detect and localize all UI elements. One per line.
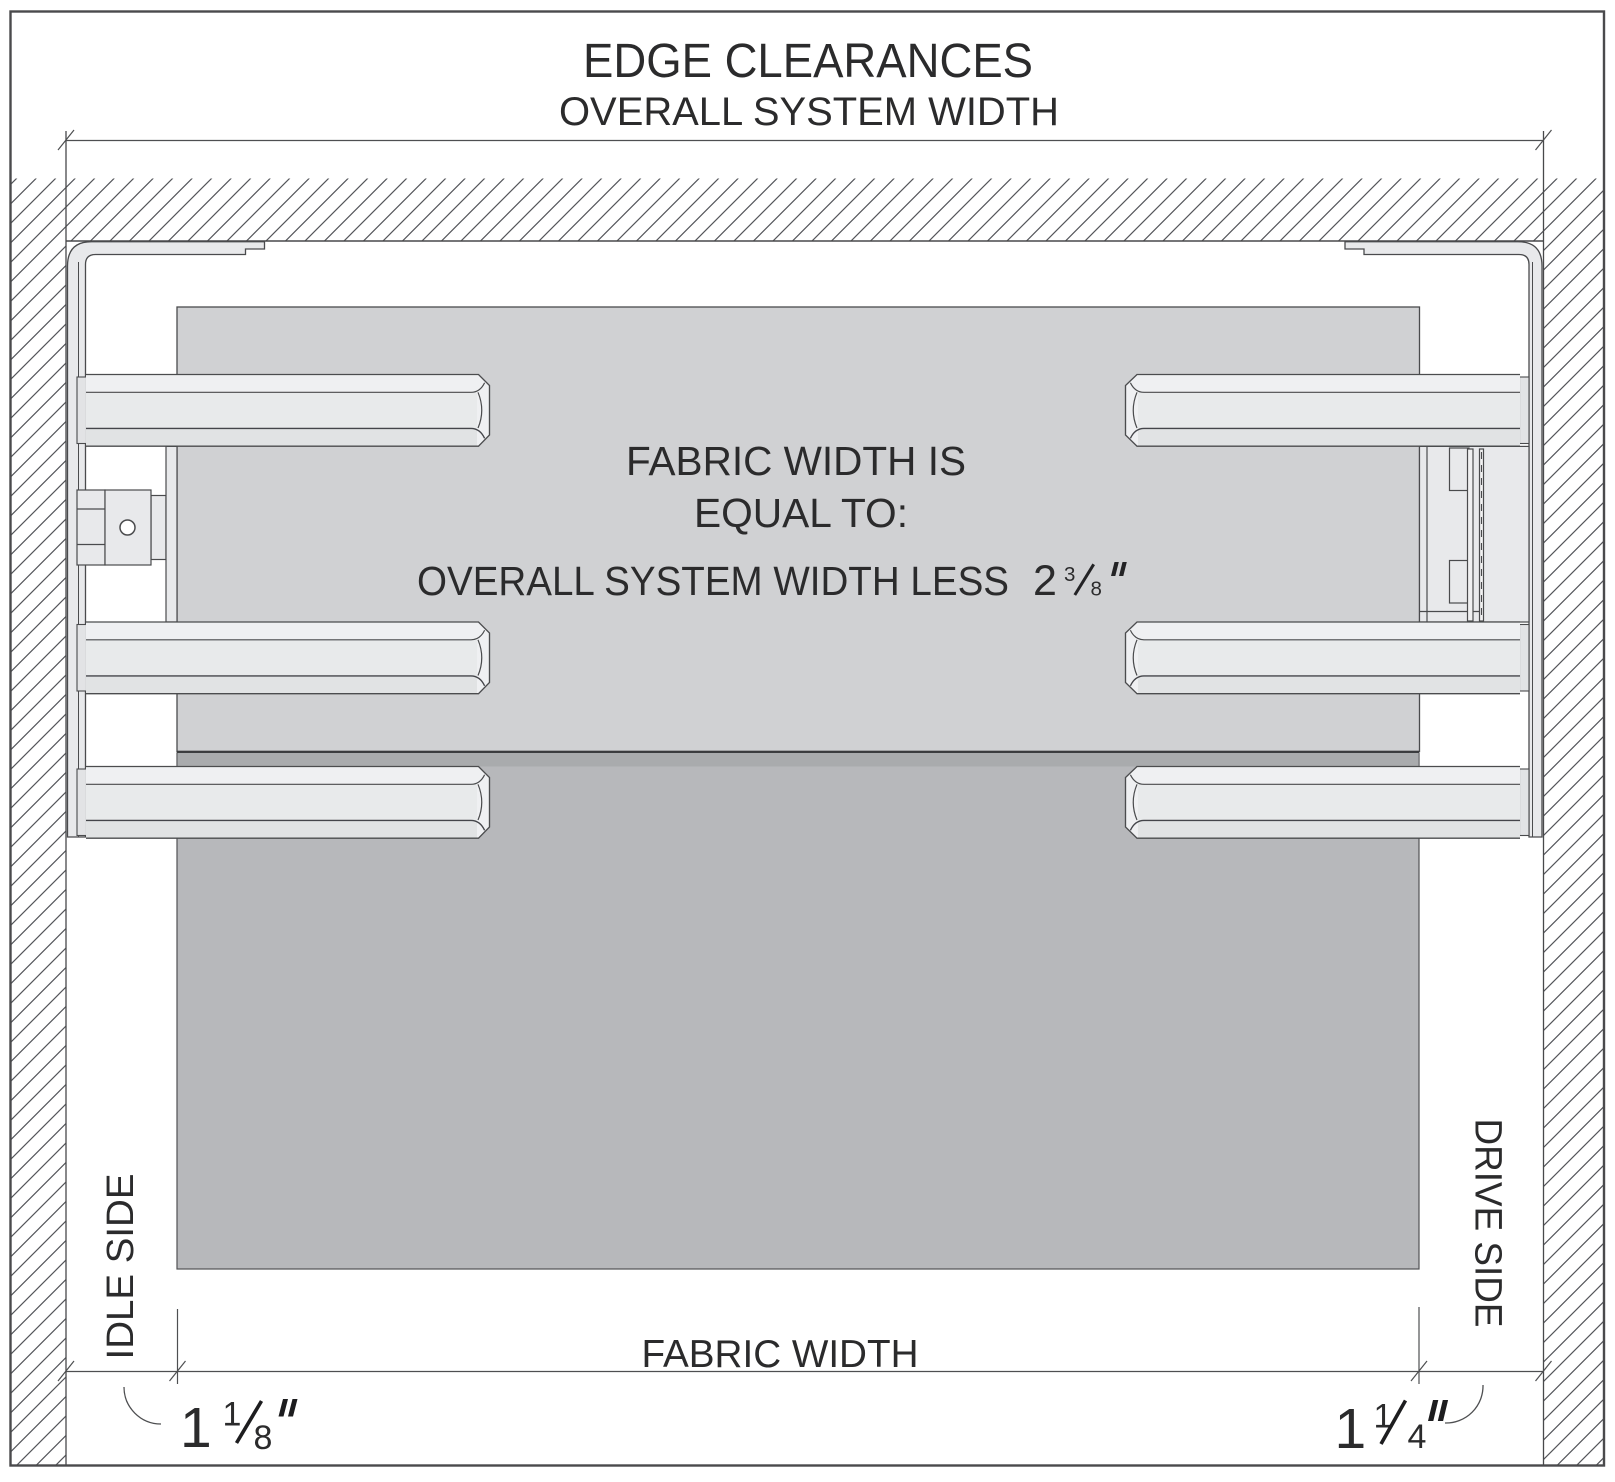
svg-text:8: 8 [254,1419,273,1457]
svg-text:OVERALL SYSTEM WIDTH: OVERALL SYSTEM WIDTH [559,90,1059,134]
svg-text:FABRIC WIDTH: FABRIC WIDTH [642,1333,919,1376]
svg-text:2: 2 [1033,557,1057,605]
svg-text:3: 3 [1064,563,1075,586]
svg-text:4: 4 [1408,1418,1427,1456]
svg-text:FABRIC WIDTH IS: FABRIC WIDTH IS [626,438,966,484]
svg-text:EDGE CLEARANCES: EDGE CLEARANCES [583,35,1033,88]
svg-text:1: 1 [1335,1397,1367,1461]
svg-text:EQUAL TO:: EQUAL TO: [694,490,908,536]
svg-text:8: 8 [1091,578,1102,601]
svg-text:DRIVE SIDE: DRIVE SIDE [1467,1119,1509,1328]
svg-text:1: 1 [223,1396,242,1434]
svg-text:OVERALL SYSTEM WIDTH LESS: OVERALL SYSTEM WIDTH LESS [417,558,1009,604]
svg-text:1: 1 [180,1396,212,1460]
svg-text:IDLE SIDE: IDLE SIDE [100,1174,142,1360]
